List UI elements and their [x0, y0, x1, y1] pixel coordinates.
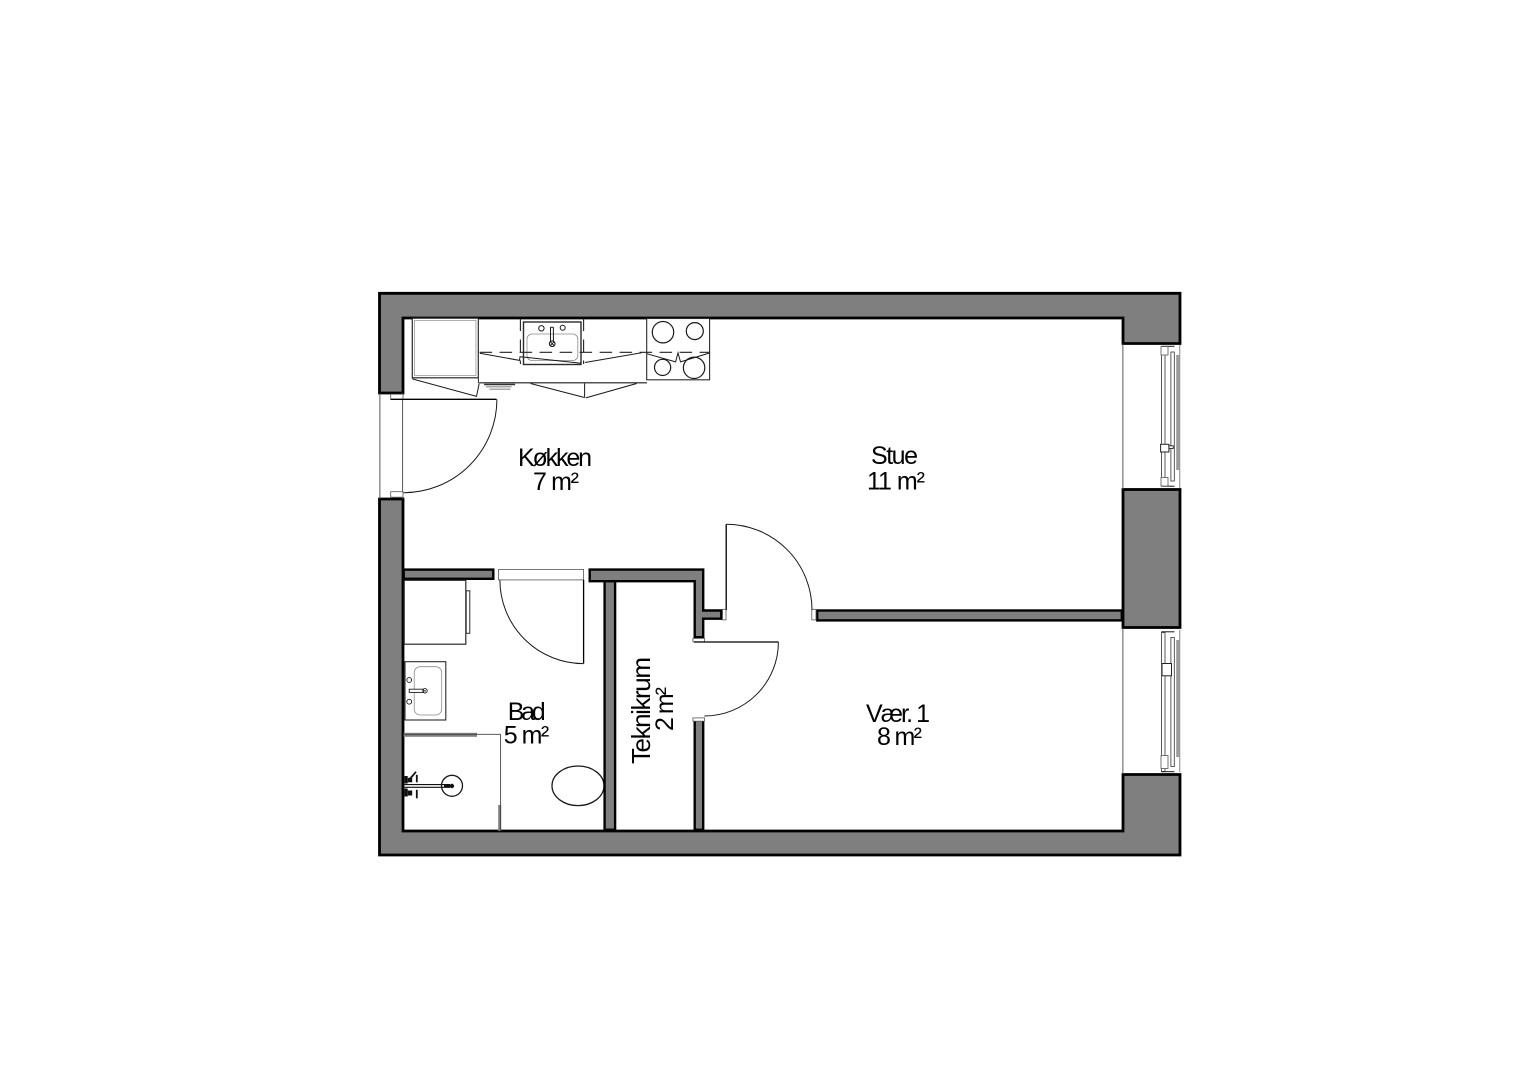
svg-text:Stue: Stue: [871, 442, 918, 470]
svg-text:5 m²: 5 m²: [504, 722, 550, 750]
svg-text:8 m²: 8 m²: [877, 723, 922, 751]
svg-text:7 m²: 7 m²: [533, 468, 579, 496]
svg-text:11 m²: 11 m²: [867, 468, 925, 496]
svg-text:2 m²: 2 m²: [651, 687, 679, 731]
